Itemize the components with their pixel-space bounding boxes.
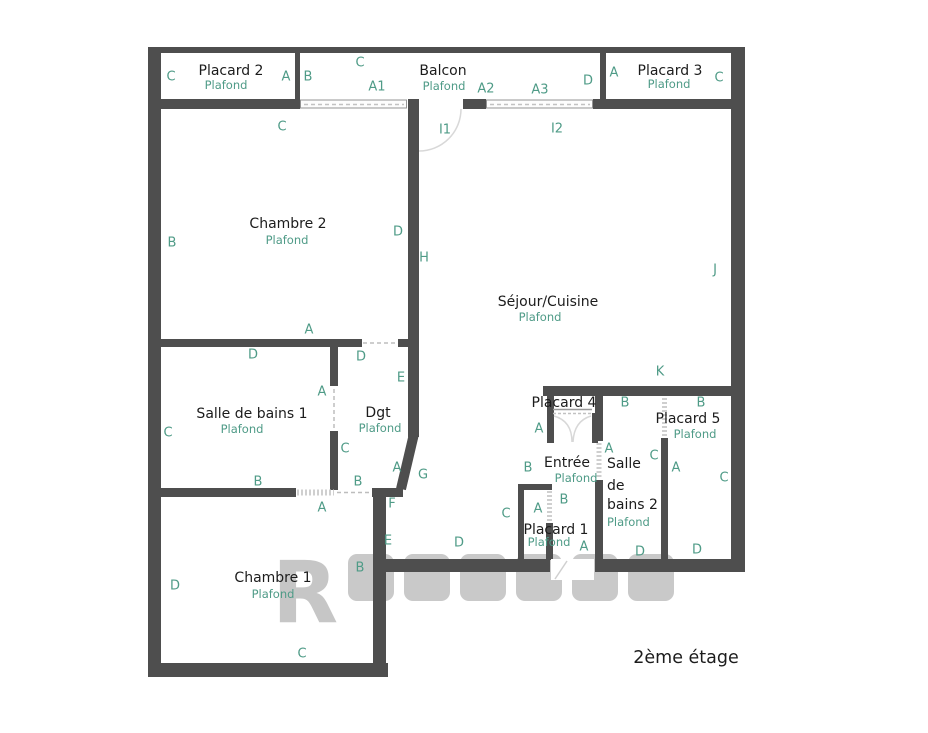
wall-letter-c: C xyxy=(163,426,172,441)
wall-letter-d: D xyxy=(170,579,180,594)
floor-plan: R xyxy=(0,0,928,733)
room-sublabel-sejour-cuisine: Plafond xyxy=(519,310,562,324)
wall-letter-a: A xyxy=(318,385,327,400)
floor-label: 2ème étage xyxy=(633,648,739,668)
wall-letter-a: A xyxy=(305,323,314,338)
wall-letter-a: A xyxy=(282,70,291,85)
wall-letter-a: A xyxy=(535,422,544,437)
wall-letter-a1: A1 xyxy=(368,80,385,95)
wall-letter-a: A xyxy=(534,502,543,517)
room-label-entree: Entrée xyxy=(544,455,590,471)
wall-letter-b: B xyxy=(621,396,630,411)
wall-letter-c: C xyxy=(297,647,306,662)
wall-letter-c: C xyxy=(714,71,723,86)
wall-letter-d: D xyxy=(692,543,702,558)
wall-letter-c: C xyxy=(355,56,364,71)
wall-letter-j: J xyxy=(713,263,717,278)
wall-letter-i1: I1 xyxy=(439,123,451,138)
room-sublabel-placard-2: Plafond xyxy=(205,78,248,92)
room-label-sejour-cuisine: Séjour/Cuisine xyxy=(498,294,599,310)
wall-letter-c: C xyxy=(340,442,349,457)
room-label-dgt: Dgt xyxy=(365,405,390,421)
wall-letter-d: D xyxy=(583,74,593,89)
room-sublabel-salle-de-bains-1: Plafond xyxy=(221,422,264,436)
labels-layer: Placard 2PlafondBalconPlafondPlacard 3Pl… xyxy=(0,0,928,733)
wall-letter-b: B xyxy=(354,475,363,490)
room-label-chambre-2: Chambre 2 xyxy=(249,216,326,232)
wall-letter-c: C xyxy=(501,507,510,522)
room-sublabel-placard-5: Plafond xyxy=(674,427,717,441)
wall-letter-b: B xyxy=(168,236,177,251)
wall-letter-a: A xyxy=(610,66,619,81)
wall-letter-a: A xyxy=(605,442,614,457)
room-label-balcon: Balcon xyxy=(419,63,466,79)
wall-letter-h: H xyxy=(419,251,429,266)
room-sublabel-balcon: Plafond xyxy=(423,79,466,93)
wall-letter-d: D xyxy=(248,348,258,363)
wall-letter-a: A xyxy=(672,461,681,476)
wall-letter-k: K xyxy=(656,365,665,380)
wall-letter-c: C xyxy=(719,471,728,486)
wall-letter-f: F xyxy=(388,497,395,512)
room-label-placard-2: Placard 2 xyxy=(199,63,264,79)
wall-letter-a2: A2 xyxy=(477,82,494,97)
wall-letter-i2: I2 xyxy=(551,122,563,137)
room-sublabel-chambre-2: Plafond xyxy=(266,233,309,247)
wall-letter-a: A xyxy=(580,540,589,555)
wall-letter-a: A xyxy=(393,461,402,476)
room-sublabel-salle-de-bains-2: Plafond xyxy=(607,515,650,529)
wall-letter-b: B xyxy=(524,461,533,476)
room-label-placard-4: Placard 4 xyxy=(532,395,597,411)
wall-letter-d: D xyxy=(635,545,645,560)
room-label-placard-5: Placard 5 xyxy=(656,411,721,427)
wall-letter-c: C xyxy=(277,120,286,135)
wall-letter-e: E xyxy=(384,534,392,549)
wall-letter-c: C xyxy=(166,70,175,85)
room-label-chambre-1: Chambre 1 xyxy=(234,570,311,586)
room-sublabel-placard-3: Plafond xyxy=(648,77,691,91)
room-label-salle-de-bains-2: de xyxy=(607,478,625,494)
room-sublabel-chambre-1: Plafond xyxy=(252,587,295,601)
wall-letter-e: E xyxy=(397,371,405,386)
wall-letter-d: D xyxy=(393,225,403,240)
wall-letter-b: B xyxy=(560,493,569,508)
room-label-salle-de-bains-2: bains 2 xyxy=(607,497,658,513)
room-sublabel-entree: Plafond xyxy=(555,471,598,485)
wall-letter-a: A xyxy=(318,501,327,516)
wall-letter-g: G xyxy=(418,468,428,483)
wall-letter-d: D xyxy=(454,536,464,551)
wall-letter-b: B xyxy=(697,396,706,411)
room-sublabel-dgt: Plafond xyxy=(359,421,402,435)
wall-letter-c: C xyxy=(649,449,658,464)
room-sublabel-placard-1: Plafond xyxy=(528,535,571,549)
wall-letter-a3: A3 xyxy=(531,83,548,98)
wall-letter-b: B xyxy=(254,475,263,490)
wall-letter-b: B xyxy=(304,70,313,85)
room-label-salle-de-bains-1: Salle de bains 1 xyxy=(196,406,307,422)
wall-letter-d: D xyxy=(356,350,366,365)
room-label-salle-de-bains-2: Salle xyxy=(607,456,641,472)
wall-letter-b: B xyxy=(356,561,365,576)
